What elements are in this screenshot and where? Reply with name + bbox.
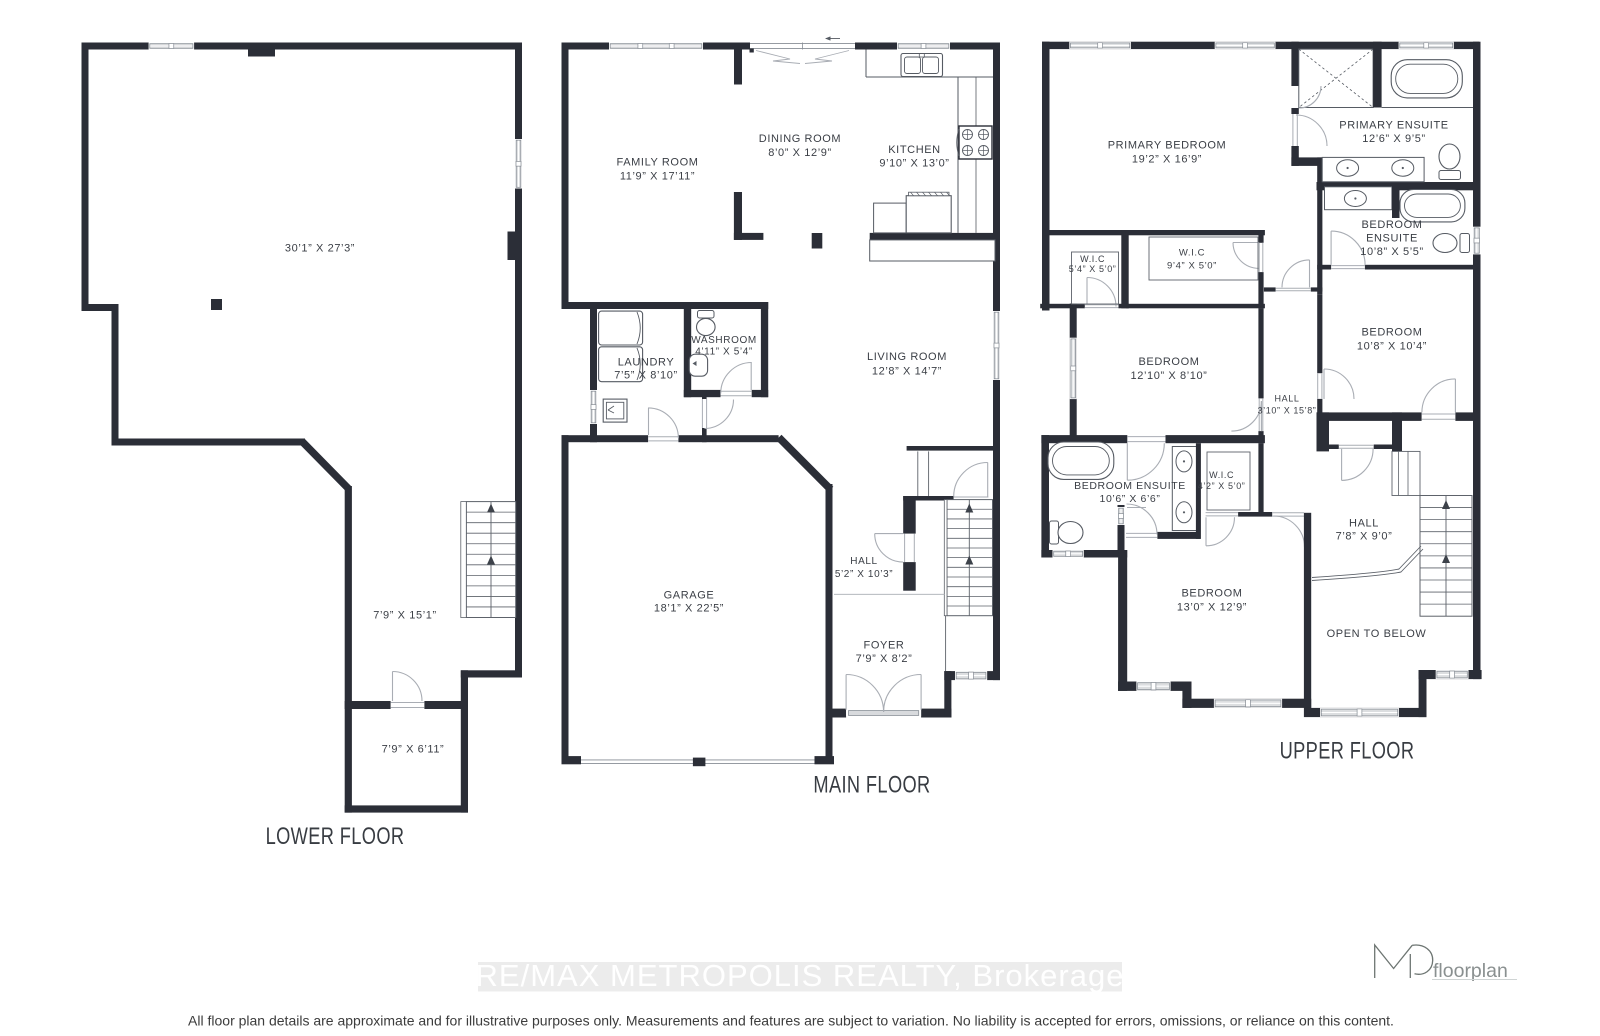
svg-text:7’8” X 9’0”: 7’8” X 9’0”: [1336, 531, 1393, 543]
svg-text:10’8” X 5’5”: 10’8” X 5’5”: [1360, 246, 1423, 258]
svg-text:W.I.C: W.I.C: [1080, 254, 1105, 264]
svg-text:BEDROOM: BEDROOM: [1138, 356, 1199, 368]
svg-text:4’11” X 5’4”: 4’11” X 5’4”: [695, 347, 753, 358]
svg-text:18’1” X 22’5”: 18’1” X 22’5”: [654, 603, 724, 615]
svg-text:ENSUITE: ENSUITE: [1366, 233, 1418, 245]
svg-text:3’10” X 15’8”: 3’10” X 15’8”: [1258, 406, 1317, 416]
svg-text:7’9” X 6’11”: 7’9” X 6’11”: [382, 744, 445, 756]
svg-text:7’5” X 8’10”: 7’5” X 8’10”: [614, 370, 677, 382]
svg-text:7’9” X 8’2”: 7’9” X 8’2”: [856, 653, 913, 665]
svg-text:PRIMARY ENSUITE: PRIMARY ENSUITE: [1339, 120, 1448, 132]
svg-text:LOWER FLOOR: LOWER FLOOR: [266, 823, 405, 850]
svg-text:HALL: HALL: [1349, 518, 1379, 530]
svg-text:All floor plan details are app: All floor plan details are approximate a…: [188, 1013, 1394, 1029]
svg-text:GARAGE: GARAGE: [664, 590, 715, 602]
svg-text:W.I.C: W.I.C: [1209, 470, 1234, 480]
svg-text:5’4” X 5’0”: 5’4” X 5’0”: [1069, 264, 1117, 274]
svg-text:DINING ROOM: DINING ROOM: [759, 133, 841, 145]
svg-text:4’2” X 5’0”: 4’2” X 5’0”: [1198, 481, 1246, 491]
svg-text:KITCHEN: KITCHEN: [888, 144, 940, 156]
svg-text:OPEN TO BELOW: OPEN TO BELOW: [1327, 628, 1427, 640]
svg-text:12’6” X 9’5”: 12’6” X 9’5”: [1362, 133, 1425, 145]
svg-text:HALL: HALL: [1275, 394, 1300, 404]
svg-text:MAIN FLOOR: MAIN FLOOR: [813, 771, 930, 798]
svg-text:9’10” X 13’0”: 9’10” X 13’0”: [879, 158, 949, 170]
svg-text:BEDROOM: BEDROOM: [1181, 588, 1242, 600]
svg-text:BEDROOM ENSUITE: BEDROOM ENSUITE: [1074, 480, 1186, 492]
svg-text:LAUNDRY: LAUNDRY: [618, 357, 675, 369]
svg-text:10’8” X 10’4”: 10’8” X 10’4”: [1357, 341, 1427, 353]
svg-text:5’2” X 10’3”: 5’2” X 10’3”: [835, 569, 893, 580]
svg-text:W.I.C: W.I.C: [1179, 248, 1205, 259]
svg-text:12’10” X 8’10”: 12’10” X 8’10”: [1131, 370, 1208, 382]
svg-text:30’1” X 27’3”: 30’1” X 27’3”: [285, 243, 355, 255]
svg-text:7’9” X 15’1”: 7’9” X 15’1”: [373, 610, 436, 622]
svg-text:12’8” X 14’7”: 12’8” X 14’7”: [872, 366, 942, 378]
svg-text:PRIMARY BEDROOM: PRIMARY BEDROOM: [1108, 140, 1227, 152]
svg-text:10’6” X 6’6”: 10’6” X 6’6”: [1100, 493, 1161, 505]
svg-text:LIVING ROOM: LIVING ROOM: [867, 351, 947, 363]
svg-text:WASHROOM: WASHROOM: [691, 335, 757, 346]
svg-text:floorplan: floorplan: [1433, 960, 1508, 982]
svg-text:13’0” X 12’9”: 13’0” X 12’9”: [1177, 602, 1247, 614]
svg-text:BEDROOM: BEDROOM: [1361, 327, 1422, 339]
svg-text:RE/MAX METROPOLIS REALTY, Brok: RE/MAX METROPOLIS REALTY, Brokerage: [476, 958, 1125, 993]
svg-text:HALL: HALL: [850, 556, 877, 567]
svg-text:11’9” X 17’11”: 11’9” X 17’11”: [620, 171, 695, 183]
svg-text:19’2” X 16’9”: 19’2” X 16’9”: [1132, 154, 1202, 166]
svg-text:FAMILY ROOM: FAMILY ROOM: [617, 157, 699, 169]
svg-text:FOYER: FOYER: [864, 640, 905, 652]
svg-text:9’4” X 5’0”: 9’4” X 5’0”: [1167, 261, 1217, 272]
svg-text:8’0” X 12’9”: 8’0” X 12’9”: [768, 147, 831, 159]
svg-text:BEDROOM: BEDROOM: [1361, 219, 1422, 231]
svg-text:UPPER FLOOR: UPPER FLOOR: [1280, 737, 1415, 764]
